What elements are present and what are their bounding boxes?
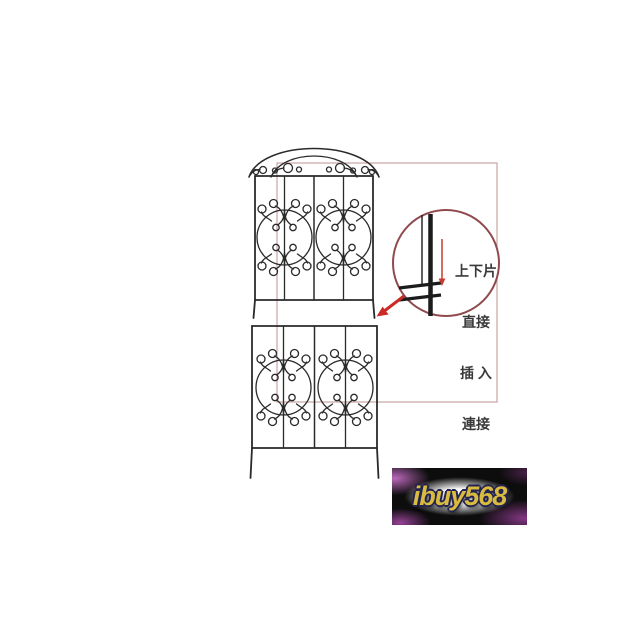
trellis-diagram [0, 0, 640, 640]
upper-trellis-panel [249, 149, 379, 319]
vertical-bars [252, 326, 377, 448]
instruction-line: 連接 [449, 416, 503, 433]
product-instruction-image: 上下片 直接 插 入 連接 ibuy568 [0, 0, 640, 640]
panel-legs [254, 300, 375, 318]
instruction-line: 直接 [449, 314, 503, 331]
callout-pointer-arrow-icon [377, 296, 405, 317]
watermark-text: ibuy568 [413, 481, 507, 512]
connection-instruction-text: 上下片 直接 插 入 連接 [449, 229, 503, 467]
vertical-bars [255, 176, 373, 300]
seller-watermark: ibuy568 [392, 468, 527, 525]
instruction-line: 插 入 [449, 365, 503, 382]
panel-legs [251, 448, 379, 478]
instruction-line: 上下片 [449, 263, 503, 280]
